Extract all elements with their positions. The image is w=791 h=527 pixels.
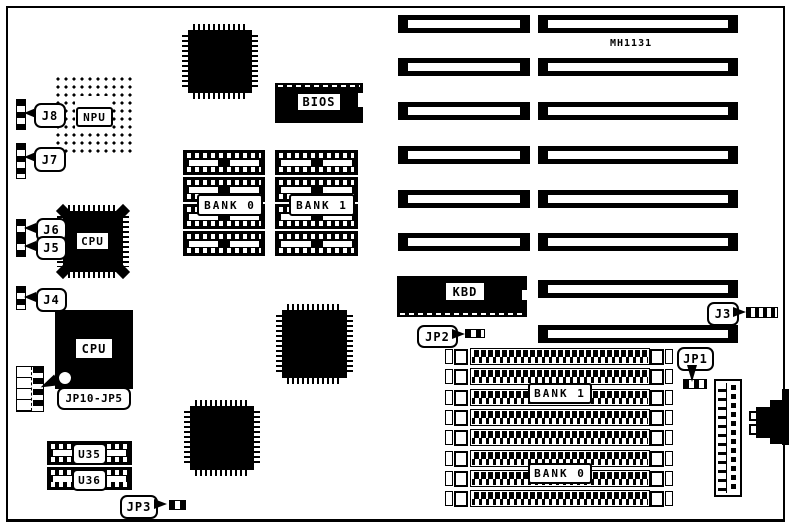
din-keyboard-connector <box>782 389 789 445</box>
isa-slot-long <box>538 102 738 120</box>
simm-socket <box>445 429 673 446</box>
simm-bank0-label: BANK 0 <box>528 463 592 484</box>
dip-socket-bank1 <box>275 150 358 175</box>
isa-slot-long <box>538 146 738 164</box>
j3-header <box>746 307 778 318</box>
j3-pointer-icon <box>733 307 746 317</box>
npu-label: NPU <box>76 107 113 127</box>
simm-bank1-label: BANK 1 <box>528 383 592 404</box>
isa-slot-long <box>538 280 738 298</box>
callout-j7: J7 <box>34 147 66 172</box>
dip-bank1-label: BANK 1 <box>289 194 355 216</box>
kbd-label: KBD <box>446 283 484 300</box>
isa-slot-short <box>398 190 530 208</box>
motherboard-diagram: J8 J7 J6 J5 J4 NPU CPU CPU JP10-JP5 U35 … <box>0 0 791 527</box>
jp2-header <box>465 329 485 338</box>
dip-socket-bank1 <box>275 231 358 256</box>
isa-slot-short <box>398 102 530 120</box>
isa-slot-long <box>538 58 738 76</box>
dip-socket-bank0 <box>183 231 265 256</box>
u36-label: U36 <box>72 469 107 491</box>
din-tab-icon <box>749 411 758 421</box>
isa-slot-long <box>538 15 738 33</box>
isa-slot-long <box>538 233 738 251</box>
din-keyboard-connector <box>756 407 770 438</box>
jp10-jp5-jumper-block <box>16 366 44 412</box>
jp3-header <box>169 500 186 510</box>
dip-socket-bank0 <box>183 150 265 175</box>
callout-j8: J8 <box>34 103 66 128</box>
j4-pointer-icon <box>24 292 36 302</box>
simm-socket <box>445 348 673 365</box>
cpu2-chip: CPU <box>55 310 133 389</box>
jp3-pointer-icon <box>154 499 167 509</box>
jp2-pointer-icon <box>452 329 465 339</box>
bios-label: BIOS <box>298 94 340 110</box>
dip-bank0-label: BANK 0 <box>197 194 263 216</box>
isa-slot-short <box>398 58 530 76</box>
jp1-pointer-icon <box>687 365 697 382</box>
pin1-marker-icon <box>59 372 71 384</box>
qfp-chip-bottom <box>190 406 254 470</box>
simm-socket <box>445 490 673 507</box>
cpu-chip: CPU <box>63 211 123 272</box>
cpu-label: CPU <box>77 233 108 249</box>
power-connector <box>714 379 742 497</box>
qfp-chip-top <box>188 30 252 93</box>
callout-j4: J4 <box>36 288 67 312</box>
isa-slot-short <box>398 233 530 251</box>
callout-j5: J5 <box>36 236 67 260</box>
bios-chip: BIOS <box>275 83 363 123</box>
isa-slot-long <box>538 325 738 343</box>
j6-pointer-icon <box>24 223 36 233</box>
isa-slot-short <box>398 146 530 164</box>
callout-jp10-jp5: JP10-JP5 <box>57 387 131 410</box>
board-part-number: MH1131 <box>610 38 652 49</box>
u35-label: U35 <box>72 443 107 465</box>
j5-pointer-icon <box>24 241 36 251</box>
callout-jp3: JP3 <box>120 495 158 519</box>
kbd-chip: KBD <box>397 276 527 317</box>
isa-slot-short <box>398 15 530 33</box>
simm-socket <box>445 409 673 426</box>
din-tab-icon <box>749 424 758 435</box>
qfp-chip-middle <box>282 310 347 378</box>
cpu2-label: CPU <box>76 339 112 358</box>
isa-slot-long <box>538 190 738 208</box>
